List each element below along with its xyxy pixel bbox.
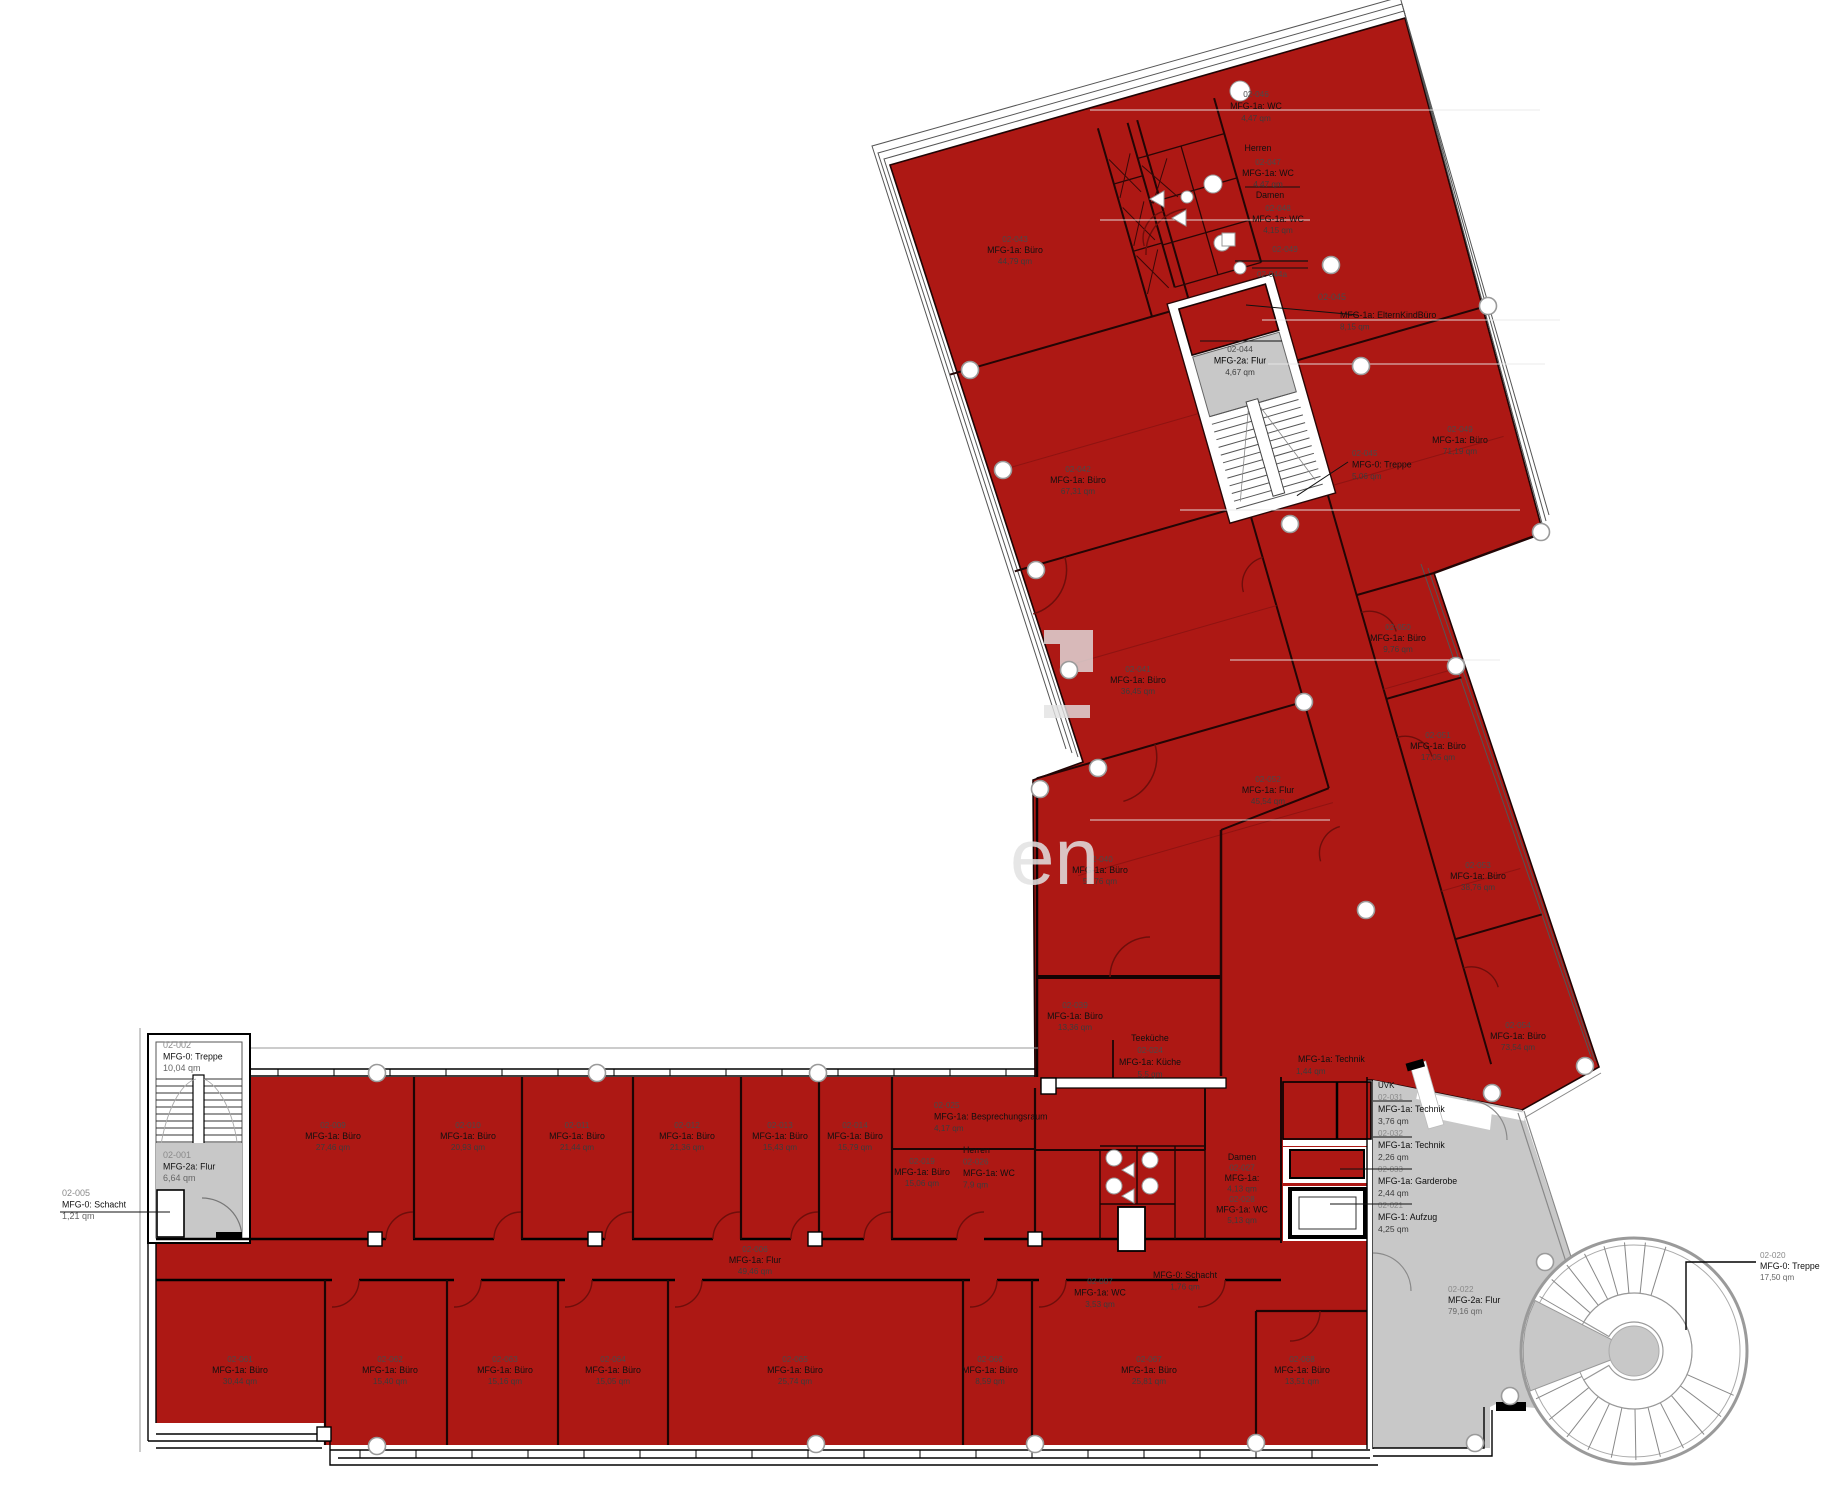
svg-text:02-048: 02-048: [1265, 204, 1291, 213]
svg-text:3,76 qm: 3,76 qm: [1378, 1116, 1409, 1126]
svg-text:4,13 qm: 4,13 qm: [1227, 1185, 1257, 1194]
svg-text:71,19 qm: 71,19 qm: [1443, 447, 1477, 456]
svg-text:MFG-1a: Büro: MFG-1a: Büro: [585, 1365, 641, 1375]
svg-text:MFG-1a: Flur: MFG-1a: Flur: [729, 1255, 781, 1265]
svg-text:02-066: 02-066: [977, 1355, 1003, 1364]
svg-text:4,47 qm: 4,47 qm: [1241, 114, 1271, 123]
svg-text:MFG-1a: Küche: MFG-1a: Küche: [1119, 1057, 1181, 1067]
svg-text:MFG-1a: Flur: MFG-1a: Flur: [1242, 785, 1294, 795]
svg-text:MFG-1a: WC: MFG-1a: WC: [1230, 101, 1282, 111]
svg-text:02-007: 02-007: [1087, 1277, 1113, 1286]
svg-text:02-051: 02-051: [1425, 731, 1451, 740]
svg-text:Herren: Herren: [1245, 143, 1272, 153]
svg-text:Damen: Damen: [1228, 1152, 1256, 1162]
svg-text:02-005: 02-005: [62, 1188, 90, 1198]
svg-text:21,44 qm: 21,44 qm: [560, 1143, 594, 1152]
svg-text:5,5 qm: 5,5 qm: [1137, 1070, 1162, 1079]
svg-text:02-063: 02-063: [492, 1355, 518, 1364]
svg-text:27,46 qm: 27,46 qm: [316, 1143, 350, 1152]
svg-text:02-002: 02-002: [163, 1040, 191, 1050]
svg-text:02-045: 02-045: [1318, 292, 1346, 302]
svg-text:MFG-1a: Büro: MFG-1a: Büro: [752, 1131, 808, 1141]
svg-text:MFG-0: Schacht: MFG-0: Schacht: [62, 1200, 127, 1210]
svg-text:02-024: 02-024: [1137, 1046, 1163, 1055]
svg-text:20,93 qm: 20,93 qm: [451, 1143, 485, 1152]
svg-text:MFG-1a:: MFG-1a:: [1225, 1173, 1260, 1183]
svg-text:5,13 qm: 5,13 qm: [1227, 1216, 1257, 1225]
svg-text:MFG-1a: Büro: MFG-1a: Büro: [362, 1365, 418, 1375]
svg-text:02-011: 02-011: [565, 1121, 590, 1130]
svg-text:Damen: Damen: [1256, 190, 1284, 200]
svg-text:02-027: 02-027: [1229, 1164, 1255, 1173]
svg-text:MFG-1a: Technik: MFG-1a: Technik: [1298, 1054, 1365, 1064]
svg-text:8,59 qm: 8,59 qm: [975, 1377, 1005, 1386]
svg-text:MFG-1a: Büro: MFG-1a: Büro: [767, 1365, 823, 1375]
svg-text:UVK: UVK: [1378, 1081, 1395, 1090]
svg-text:MFG-1a: WC: MFG-1a: WC: [1242, 168, 1294, 178]
svg-text:MFG-1a: Büro: MFG-1a: Büro: [1410, 741, 1466, 751]
svg-text:02-062: 02-062: [377, 1355, 403, 1364]
svg-text:45,54 qm: 45,54 qm: [1251, 797, 1285, 806]
svg-text:MFG-1a: Büro: MFG-1a: Büro: [1370, 633, 1426, 643]
svg-text:21,36 qm: 21,36 qm: [670, 1143, 704, 1152]
svg-text:1,44 qm: 1,44 qm: [1296, 1067, 1326, 1076]
svg-text:02-013: 02-013: [767, 1121, 793, 1130]
svg-text:MFG-1a: Büro: MFG-1a: Büro: [659, 1131, 715, 1141]
svg-text:02-049: 02-049: [1447, 425, 1473, 434]
svg-text:15,79 qm: 15,79 qm: [838, 1143, 872, 1152]
svg-text:02-009: 02-009: [320, 1121, 346, 1130]
svg-text:MFG-1a: Büro: MFG-1a: Büro: [827, 1131, 883, 1141]
svg-text:8,15 qm: 8,15 qm: [1340, 323, 1370, 332]
svg-text:4,17 qm: 4,17 qm: [934, 1124, 964, 1133]
svg-text:5,06 qm: 5,06 qm: [1352, 472, 1382, 481]
svg-text:02-068: 02-068: [1289, 1355, 1315, 1364]
svg-text:02-043: 02-043: [1002, 235, 1028, 244]
svg-text:02-042: 02-042: [1065, 465, 1091, 474]
svg-text:Herren: Herren: [963, 1145, 990, 1155]
svg-text:02-028: 02-028: [1229, 1195, 1255, 1204]
svg-text:MFG-1a: Technik: MFG-1a: Technik: [1378, 1104, 1445, 1114]
svg-text:MFG-0: Schacht: MFG-0: Schacht: [1153, 1270, 1218, 1280]
svg-text:Teeküche: Teeküche: [1131, 1033, 1169, 1043]
svg-text:49,46 qm: 49,46 qm: [738, 1267, 772, 1276]
svg-text:MFG-1a: Büro: MFG-1a: Büro: [1450, 871, 1506, 881]
svg-text:MFG-1a: WC: MFG-1a: WC: [963, 1168, 1015, 1178]
svg-text:MFG-1a: Büro: MFG-1a: Büro: [962, 1365, 1018, 1375]
svg-text:67,31 qm: 67,31 qm: [1061, 487, 1095, 496]
svg-text:30,44 qm: 30,44 qm: [223, 1377, 257, 1386]
svg-text:17,50 qm: 17,50 qm: [1760, 1273, 1794, 1282]
svg-text:MFG-1: Aufzug: MFG-1: Aufzug: [1378, 1212, 1437, 1222]
svg-text:MFG-1a: Büro: MFG-1a: Büro: [212, 1365, 268, 1375]
svg-text:MFG-1a: Büro: MFG-1a: Büro: [1047, 1011, 1103, 1021]
svg-text:MFG-1a: Büro: MFG-1a: Büro: [305, 1131, 361, 1141]
svg-text:02-044: 02-044: [1227, 345, 1253, 354]
svg-text:02-020: 02-020: [1760, 1251, 1786, 1260]
svg-text:02-001: 02-001: [163, 1150, 191, 1160]
svg-text:44,79 qm: 44,79 qm: [998, 257, 1032, 266]
svg-text:1,76 qm: 1,76 qm: [1170, 1283, 1200, 1292]
svg-text:02-010: 02-010: [455, 1121, 481, 1130]
svg-text:02-054: 02-054: [1505, 1021, 1531, 1030]
svg-text:02-047: 02-047: [1255, 158, 1281, 167]
svg-text:02-046: 02-046: [1243, 90, 1269, 99]
svg-text:MFG-1a: Büro: MFG-1a: Büro: [894, 1167, 950, 1177]
svg-text:02-050: 02-050: [1385, 623, 1411, 632]
svg-text:02-021: 02-021: [1378, 1201, 1403, 1210]
svg-text:MFG-1a: WC: MFG-1a: WC: [1216, 1205, 1268, 1215]
svg-text:MFG-1a: Büro: MFG-1a: Büro: [1121, 1365, 1177, 1375]
svg-text:02-052: 02-052: [1255, 775, 1281, 784]
svg-text:15,40 qm: 15,40 qm: [373, 1377, 407, 1386]
svg-text:MFG-2a: Flur: MFG-2a: Flur: [163, 1162, 215, 1172]
svg-text:15,16 qm: 15,16 qm: [488, 1377, 522, 1386]
svg-text:02-019: 02-019: [909, 1157, 935, 1166]
svg-text:02-061: 02-061: [227, 1355, 253, 1364]
svg-text:MFG-1a: Technik: MFG-1a: Technik: [1378, 1140, 1445, 1150]
svg-text:4,15 qm: 4,15 qm: [1263, 226, 1293, 235]
svg-text:02-053: 02-053: [1465, 861, 1491, 870]
svg-text:7,9 qm: 7,9 qm: [963, 1181, 988, 1190]
svg-text:MFG-1a: WC: MFG-1a: WC: [1074, 1288, 1126, 1298]
svg-text:02-025: 02-025: [934, 1101, 960, 1110]
svg-text:13,51 qm: 13,51 qm: [1285, 1377, 1319, 1386]
svg-text:MFG-1a: WC: MFG-1a: WC: [1252, 214, 1304, 224]
svg-text:4,47 qm: 4,47 qm: [1253, 180, 1283, 189]
svg-text:15,06 qm: 15,06 qm: [905, 1179, 939, 1188]
svg-text:02-045: 02-045: [1352, 449, 1378, 458]
svg-text:MFG-1a: Büro: MFG-1a: Büro: [440, 1131, 496, 1141]
svg-text:36,45 qm: 36,45 qm: [1121, 687, 1155, 696]
svg-text:MFG-1a: Büro: MFG-1a: Büro: [549, 1131, 605, 1141]
svg-text:17,05 qm: 17,05 qm: [1421, 753, 1455, 762]
svg-text:3,53 qm: 3,53 qm: [1085, 1300, 1115, 1309]
svg-text:MFG-1a: Büro: MFG-1a: Büro: [1490, 1031, 1546, 1041]
svg-text:25,74 qm: 25,74 qm: [778, 1377, 812, 1386]
svg-text:MFG-1a: Büro: MFG-1a: Büro: [1432, 435, 1488, 445]
svg-text:38,76 qm: 38,76 qm: [1461, 883, 1495, 892]
svg-text:02-049: 02-049: [1272, 245, 1298, 254]
svg-text:15,05 qm: 15,05 qm: [596, 1377, 630, 1386]
svg-text:10,04 qm: 10,04 qm: [163, 1063, 201, 1073]
svg-text:02-012: 02-012: [674, 1121, 700, 1130]
svg-text:MFG-1a: Büro: MFG-1a: Büro: [1050, 475, 1106, 485]
svg-text:02-065: 02-065: [782, 1355, 808, 1364]
svg-text:02-064: 02-064: [600, 1355, 626, 1364]
svg-text:6,64 qm: 6,64 qm: [163, 1173, 196, 1183]
svg-text:MFG-1a: Besprechungsraum: MFG-1a: Besprechungsraum: [934, 1112, 1047, 1122]
svg-text:MFG-1a: Büro: MFG-1a: Büro: [1274, 1365, 1330, 1375]
svg-text:2,44 qm: 2,44 qm: [1378, 1188, 1409, 1198]
svg-text:en: en: [1010, 812, 1099, 901]
svg-text:02-006: 02-006: [742, 1245, 768, 1254]
svg-text:9,76 qm: 9,76 qm: [1383, 645, 1413, 654]
svg-text:02-039: 02-039: [1062, 1001, 1088, 1010]
svg-text:2,26 qm: 2,26 qm: [1378, 1152, 1409, 1162]
svg-text:02-014: 02-014: [842, 1121, 868, 1130]
svg-text:79,16 qm: 79,16 qm: [1448, 1307, 1482, 1316]
svg-text:73,54 qm: 73,54 qm: [1501, 1043, 1535, 1052]
svg-text:MFG-1a: Garderobe: MFG-1a: Garderobe: [1378, 1176, 1457, 1186]
svg-text:02-041: 02-041: [1125, 665, 1151, 674]
svg-text:4,25 qm: 4,25 qm: [1378, 1224, 1409, 1234]
svg-text:02-044a: 02-044a: [1257, 270, 1287, 279]
svg-text:MFG-1a: ElternKindBüro: MFG-1a: ElternKindBüro: [1340, 310, 1436, 320]
svg-text:MFG-1a: Büro: MFG-1a: Büro: [987, 245, 1043, 255]
svg-text:02-026: 02-026: [963, 1158, 989, 1167]
svg-text:MFG-0: Treppe: MFG-0: Treppe: [163, 1052, 223, 1062]
svg-text:MFG-1a: Büro: MFG-1a: Büro: [1110, 675, 1166, 685]
svg-text:MFG-2a: Flur: MFG-2a: Flur: [1214, 356, 1266, 366]
svg-text:4,67 qm: 4,67 qm: [1225, 368, 1255, 377]
svg-text:02-067: 02-067: [1136, 1355, 1162, 1364]
svg-text:25,81 qm: 25,81 qm: [1132, 1377, 1166, 1386]
svg-text:13,36 qm: 13,36 qm: [1058, 1023, 1092, 1032]
svg-text:15,43 qm: 15,43 qm: [763, 1143, 797, 1152]
svg-text:MFG-0: Treppe: MFG-0: Treppe: [1352, 460, 1412, 470]
svg-text:MFG-0: Treppe: MFG-0: Treppe: [1760, 1261, 1820, 1271]
svg-text:MFG-2a: Flur: MFG-2a: Flur: [1448, 1295, 1500, 1305]
svg-text:02-022: 02-022: [1448, 1285, 1474, 1294]
svg-text:MFG-1a: Büro: MFG-1a: Büro: [477, 1365, 533, 1375]
